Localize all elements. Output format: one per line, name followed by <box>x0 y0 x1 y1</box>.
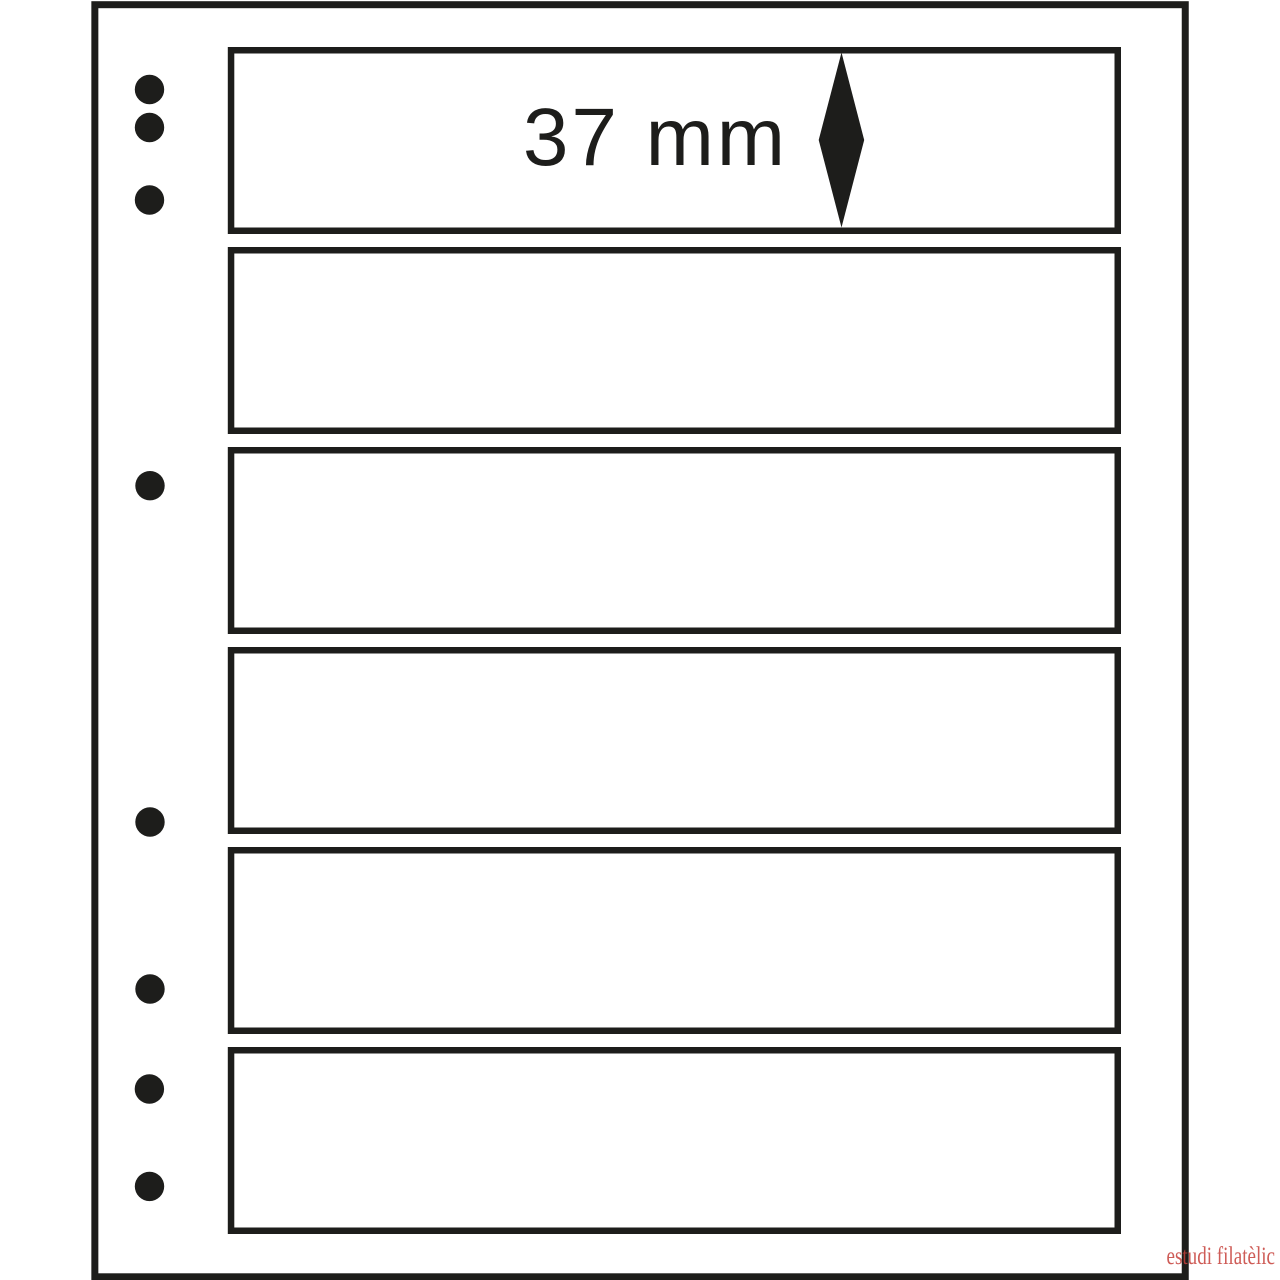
svg-text:37 mm: 37 mm <box>523 92 788 183</box>
svg-text:estudi filatèlic: estudi filatèlic <box>1167 1241 1276 1270</box>
